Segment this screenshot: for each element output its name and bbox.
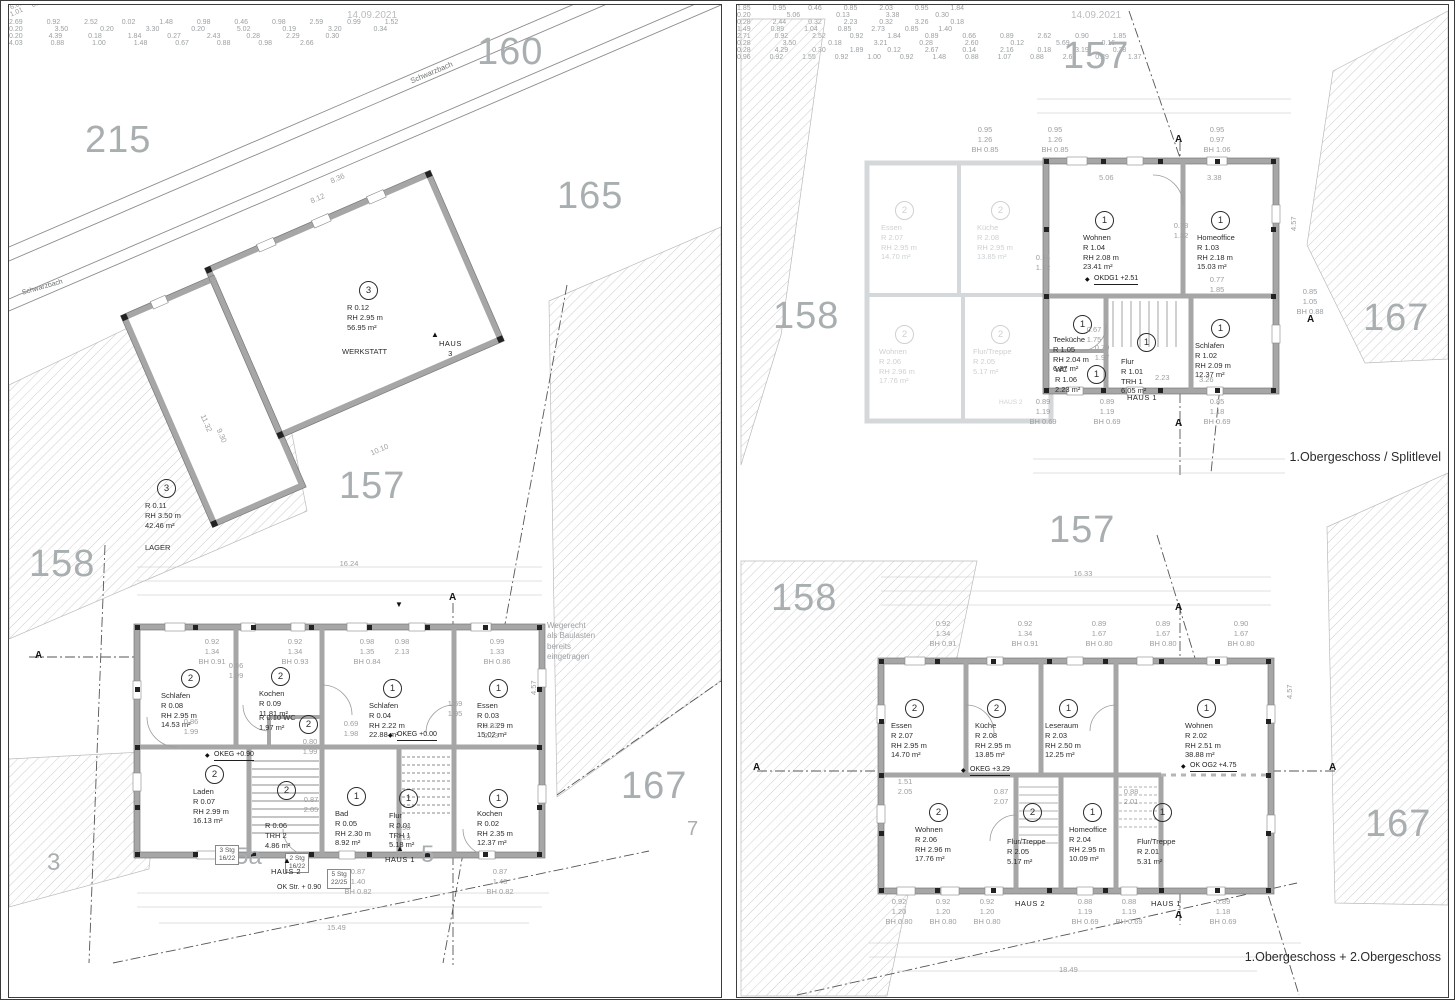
window-spec-bw4: 0.89 1.67 BH 0.80 [1145, 619, 1181, 648]
unit-badge-werkstatt: 3 [359, 281, 378, 300]
section-marker-a-left: A [35, 649, 42, 662]
parcel-165: 165 [557, 177, 623, 215]
parcel-157-bottom: 157 [1049, 511, 1115, 549]
room-lager-data: R 0.11 RH 3.50 m 42.46 m² [145, 501, 181, 530]
room-werkstatt-data: R 0.12 RH 2.95 m 56.95 m² [347, 303, 383, 332]
unit-badge-leseraum: 1 [1059, 699, 1078, 718]
dim-bi3: 0.88 2.01 [1117, 787, 1145, 807]
haus1-label-bottom-plan: HAUS 1 [1151, 899, 1181, 909]
door-spec-m7: 0.98 2.13 [389, 823, 417, 843]
stair-label-3: 5 Stg 22/25 [327, 869, 351, 889]
room-wc106: WC R 1.06 2.23 m² [1055, 365, 1080, 394]
unit-badge-wohnen206: 2 [929, 803, 948, 822]
unit-badge-flur201: 1 [1153, 803, 1172, 822]
parcel-160: 160 [477, 33, 543, 71]
door-spec-m3: 1.69 1.95 [441, 699, 469, 719]
haus1-label: HAUS 1 [385, 855, 415, 865]
dim-ti8: 2.23 [1155, 373, 1170, 383]
level-og1: OKEG +3.29 [970, 765, 1010, 776]
dim-ti1: 5.06 [1099, 173, 1114, 183]
panel-ground-floor: 14.09.2021 160 215 165 157 158 167 3 7 5… [8, 4, 722, 998]
room-essen207: Essen R 2.07 RH 2.95 m 14.70 m² [891, 721, 927, 760]
dim-bbtotal: 18.49 [1059, 965, 1078, 975]
unit-badge-wohnen104: 1 [1095, 211, 1114, 230]
entrance-icon-haus1: ▲ [396, 845, 404, 853]
house-number-5: 5 [421, 843, 434, 867]
room-bad: Bad R 0.05 RH 2.30 m 8.92 m² [335, 809, 371, 848]
window-spec-ti10: 0.85 1.05 BH 0.88 [1293, 287, 1327, 316]
haus3-label: HAUS 3 [439, 339, 462, 359]
window-spec-tw2: 0.95 1.26 BH 0.85 [1037, 125, 1073, 154]
dim-v3: 4.57 [529, 680, 539, 695]
window-spec-tb2: 0.89 1.19 BH 0.69 [1089, 397, 1125, 426]
level-marker-icon-dg1: ◆ [1085, 277, 1090, 283]
room-wohnen104: Wohnen R 1.04 RH 2.08 m 23.41 m² [1083, 233, 1119, 272]
window-spec-bb5: 0.88 1.19 BH 0.69 [1111, 897, 1147, 926]
ghost-haus2-label: HAUS 2 [999, 399, 1022, 407]
room-homeoffice204: Homeoffice R 2.04 RH 2.95 m 10.09 m² [1069, 825, 1107, 864]
window-spec-w4: 0.98 1.35 BH 0.84 [349, 637, 385, 666]
unit-badge-schlafen2: 2 [181, 669, 200, 688]
room-homeoffice103: Homeoffice R 1.03 RH 2.18 m 15.03 m² [1197, 233, 1235, 272]
dim-btotal: 16.33 [1053, 569, 1113, 579]
parcel-158-top: 158 [773, 297, 839, 335]
haus1-label-top-plan: HAUS 1 [1127, 393, 1157, 403]
ghost-room-essen: Essen R 2.07 RH 2.95 m 14.70 m² [881, 223, 917, 262]
section-a-bot-left: A [753, 761, 760, 774]
parcel-7: 7 [687, 819, 698, 839]
parcel-167: 167 [621, 767, 687, 805]
door-spec-m2: 0.69 1.98 [337, 719, 365, 739]
caption-splitlevel: 1.Obergeschoss / Splitlevel [1265, 449, 1441, 465]
door-spec-m4: 0.83 2.03 [477, 721, 505, 741]
window-spec-w5: 0.98 2.13 [387, 637, 417, 657]
window-spec-w2: 0.86 1.99 [221, 661, 251, 681]
window-spec-bb3: 0.92 1.20 BH 0.80 [969, 897, 1005, 926]
level-marker-icon-og1: ◆ [961, 768, 966, 774]
dim-v2-right: 4.57 [1285, 684, 1295, 699]
ghost-room-flurtreppe: Flur/Treppe R 2.05 5.17 m² [973, 347, 1012, 376]
unit-badge-bad: 1 [347, 787, 366, 806]
room-kueche208: Küche R 2.08 RH 2.95 m 13.85 m² [975, 721, 1011, 760]
ghost-unit-badge-wohnen: 2 [895, 325, 914, 344]
room-werkstatt-name: WERKSTATT [342, 347, 387, 357]
unit-badge-wohnen202: 1 [1197, 699, 1216, 718]
door-spec-m6: 0.87 2.05 [297, 795, 325, 815]
stair-label-1: 3 Stg 16/22 [215, 845, 239, 865]
window-spec-tw1: 0.95 1.26 BH 0.85 [967, 125, 1003, 154]
section-a-bot-right: A [1329, 761, 1336, 774]
window-spec-bw3: 0.89 1.67 BH 0.80 [1081, 619, 1117, 648]
level-marker-icon-eg0: ◆ [388, 733, 393, 739]
section-a-top1: A [1175, 133, 1182, 146]
room-kochen1: Kochen R 0.02 RH 2.35 m 12.37 m² [477, 809, 513, 848]
entrance-icon-top: ▼ [395, 601, 403, 609]
section-a-bot2: A [1175, 909, 1182, 922]
window-spec-b2: 0.87 1.40 BH 0.82 [483, 867, 517, 896]
unit-badge-flur101: 1 [1137, 333, 1156, 352]
room-wohnen202: Wohnen R 2.02 RH 2.51 m 38.88 m² [1185, 721, 1221, 760]
dim-ti2: 3.38 [1207, 173, 1222, 183]
ghost-unit-badge-flurtreppe: 2 [991, 325, 1010, 344]
window-spec-w3: 0.92 1.34 BH 0.93 [277, 637, 313, 666]
parcel-158-bottom: 158 [771, 579, 837, 617]
room-wc2: R 0.10 WC 1.97 m² [259, 713, 296, 733]
unit-badge-lager: 3 [157, 479, 176, 498]
unit-badge-homeoffice103: 1 [1211, 211, 1230, 230]
room-flur101: Flur R 1.01 TRH 1 6.05 m² [1121, 357, 1146, 396]
unit-badge-schlafen1: 1 [383, 679, 402, 698]
date-stamp: 14.09.2021 [327, 9, 417, 22]
parcel-167-bottom: 167 [1365, 805, 1431, 843]
door-spec-m5: 0.80 1.99 [296, 737, 324, 757]
unit-badge-kochen1: 1 [489, 789, 508, 808]
unit-badge-trh2: 2 [277, 781, 296, 800]
unit-badge-schlafen102: 1 [1211, 319, 1230, 338]
level-marker-icon-og2: ◆ [1181, 764, 1186, 770]
unit-badge-wc2: 2 [299, 715, 318, 734]
dim-total-bottom: 15.49 [327, 923, 346, 933]
unit-badge-kueche208: 2 [987, 699, 1006, 718]
level-okdg1: OKDG1 +2.51 [1094, 274, 1138, 285]
parcel-157-top: 157 [1063, 37, 1129, 75]
unit-badge-homeoffice204: 1 [1083, 803, 1102, 822]
dim-ti5: 0.77 1.85 [1203, 275, 1231, 295]
window-spec-tb1: 0.89 1.19 BH 0.69 [1025, 397, 1061, 426]
dim-ti9: 3.26 [1199, 375, 1214, 385]
unit-badge-flur205: 2 [1023, 803, 1042, 822]
room-lager-name: LAGER [145, 543, 170, 553]
unit-badge-wc106: 1 [1087, 365, 1106, 384]
window-spec-bb6: 0.89 1.18 BH 0.69 [1205, 897, 1241, 926]
haus2-label-bottom-plan: HAUS 2 [1015, 899, 1045, 909]
unit-badge-essen1: 1 [489, 679, 508, 698]
room-flur205: Flur/Treppe R 2.05 5.17 m² [1007, 837, 1046, 866]
unit-badge-flur1: 1 [399, 789, 418, 808]
door-spec-m1: 0.86 1.99 [177, 717, 205, 737]
ghost-unit-badge-kueche: 2 [991, 201, 1010, 220]
window-spec-tb3: 0.85 1.18 BH 0.69 [1199, 397, 1235, 426]
window-spec-bw2: 0.92 1.34 BH 0.91 [1007, 619, 1043, 648]
entrance-icon-haus2: ▲ [283, 857, 291, 865]
room-laden: Laden R 0.07 RH 2.99 m 16.13 m² [193, 787, 229, 826]
unit-badge-essen207: 2 [905, 699, 924, 718]
parcel-3: 3 [47, 851, 60, 875]
room-trh2: R 0.06 TRH 2 4.86 m² [265, 821, 290, 850]
ghost-room-kueche: Küche R 2.08 RH 2.95 m 13.85 m² [977, 223, 1013, 262]
window-spec-bw1: 0.92 1.34 BH 0.91 [925, 619, 961, 648]
window-spec-w6: 0.99 1.33 BH 0.86 [479, 637, 515, 666]
window-spec-bb1: 0.92 1.20 BH 0.80 [881, 897, 917, 926]
section-a-top2: A [1175, 417, 1182, 430]
window-spec-bb4: 0.88 1.19 BH 0.69 [1067, 897, 1103, 926]
parcel-157: 157 [339, 467, 405, 505]
room-leseraum: Leseraum R 2.03 RH 2.50 m 12.25 m² [1045, 721, 1081, 760]
haus2-label: HAUS 2 [271, 867, 301, 877]
dim-bi2: 0.87 2.07 [987, 787, 1015, 807]
unit-badge-laden: 2 [205, 765, 224, 784]
panel-upper-floors: 14.09.2021 157 158 167 157 158 167 1.Obe… [736, 4, 1449, 998]
room-flur201: Flur/Treppe R 2.01 5.31 m² [1137, 837, 1176, 866]
parcel-215: 215 [85, 121, 151, 159]
level-okeg-090: OKEG +0.90 [214, 750, 254, 761]
entrance-icon-haus3: ▲ [431, 331, 439, 339]
section-a-bot1: A [1175, 601, 1182, 614]
ghost-room-wohnen: Wohnen R 2.06 RH 2.96 m 17.76 m² [879, 347, 915, 386]
level-marker-icon-eg90: ◆ [205, 753, 210, 759]
dim-total-top: 16.24 [149, 559, 549, 569]
date-stamp-right: 14.09.2021 [1051, 9, 1141, 22]
window-spec-bw5: 0.90 1.67 BH 0.80 [1223, 619, 1259, 648]
dim-ti4: 0.78 1.82 [1167, 221, 1195, 241]
dim-ti7: 0.67 1.75 [1081, 325, 1107, 345]
window-spec-tw3: 0.95 0.97 BH 1.06 [1199, 125, 1235, 154]
dim-bi1: 1.51 2.05 [891, 777, 919, 797]
caption-og1-og2: 1.Obergeschoss + 2.Obergeschoss [1225, 949, 1441, 965]
window-spec-bb2: 0.92 1.20 BH 0.80 [925, 897, 961, 926]
level-okeg-000: OKEG +0.00 [397, 730, 437, 741]
parcel-158: 158 [29, 545, 95, 583]
easement-note: Wegerecht als Baulasten bereits eingetra… [547, 621, 595, 663]
dim-ti3: 0.74 1.72 [1029, 253, 1057, 273]
section-marker-a-top: A [449, 591, 456, 604]
room-wohnen206: Wohnen R 2.06 RH 2.96 m 17.76 m² [915, 825, 951, 864]
drawing-sheet: 14.09.2021 160 215 165 157 158 167 3 7 5… [0, 0, 1455, 1000]
level-og2: OK OG2 +4.75 [1190, 761, 1237, 772]
parcel-167-top: 167 [1363, 299, 1429, 337]
dim-ti6: 0.70 1.97 [1089, 343, 1115, 363]
dim-v1-right: 4.57 [1289, 216, 1299, 231]
level-ok-str: OK Str. + 0.90 [277, 883, 321, 892]
ghost-unit-badge-essen: 2 [895, 201, 914, 220]
unit-badge-kochen2: 2 [271, 667, 290, 686]
